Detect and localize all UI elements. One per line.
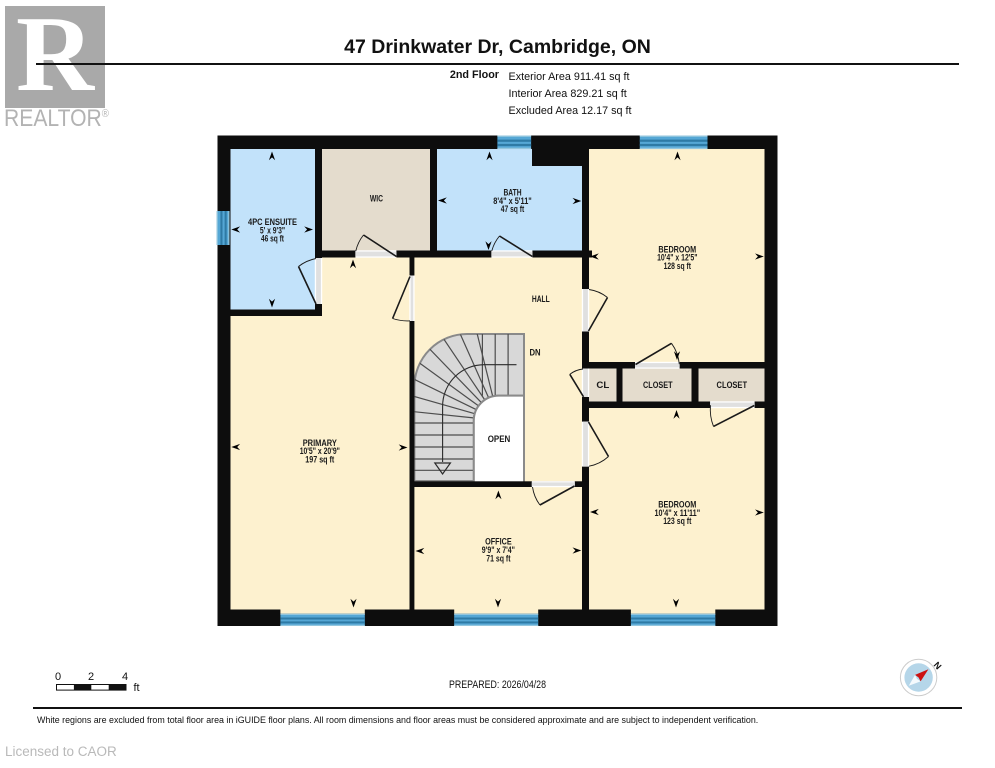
svg-text:HALL: HALL [532, 294, 550, 304]
svg-text:0: 0 [55, 671, 61, 683]
svg-text:WIC: WIC [370, 193, 383, 203]
svg-text:46 sq ft: 46 sq ft [261, 234, 284, 244]
svg-text:CLOSET: CLOSET [717, 380, 748, 390]
svg-text:CLOSET: CLOSET [643, 380, 673, 390]
svg-text:DN: DN [529, 348, 540, 358]
svg-text:123 sq ft: 123 sq ft [663, 516, 691, 526]
svg-text:ft: ft [134, 682, 140, 694]
svg-text:128 sq ft: 128 sq ft [664, 261, 691, 271]
svg-text:CL: CL [596, 380, 610, 390]
svg-text:71 sq ft: 71 sq ft [486, 553, 510, 563]
svg-text:OPEN: OPEN [488, 434, 511, 444]
svg-text:4: 4 [122, 671, 128, 683]
svg-text:47 sq ft: 47 sq ft [501, 204, 525, 214]
svg-text:PREPARED: 2026/04/28: PREPARED: 2026/04/28 [449, 679, 546, 691]
svg-text:197 sq ft: 197 sq ft [305, 455, 334, 465]
svg-text:2: 2 [88, 671, 94, 683]
